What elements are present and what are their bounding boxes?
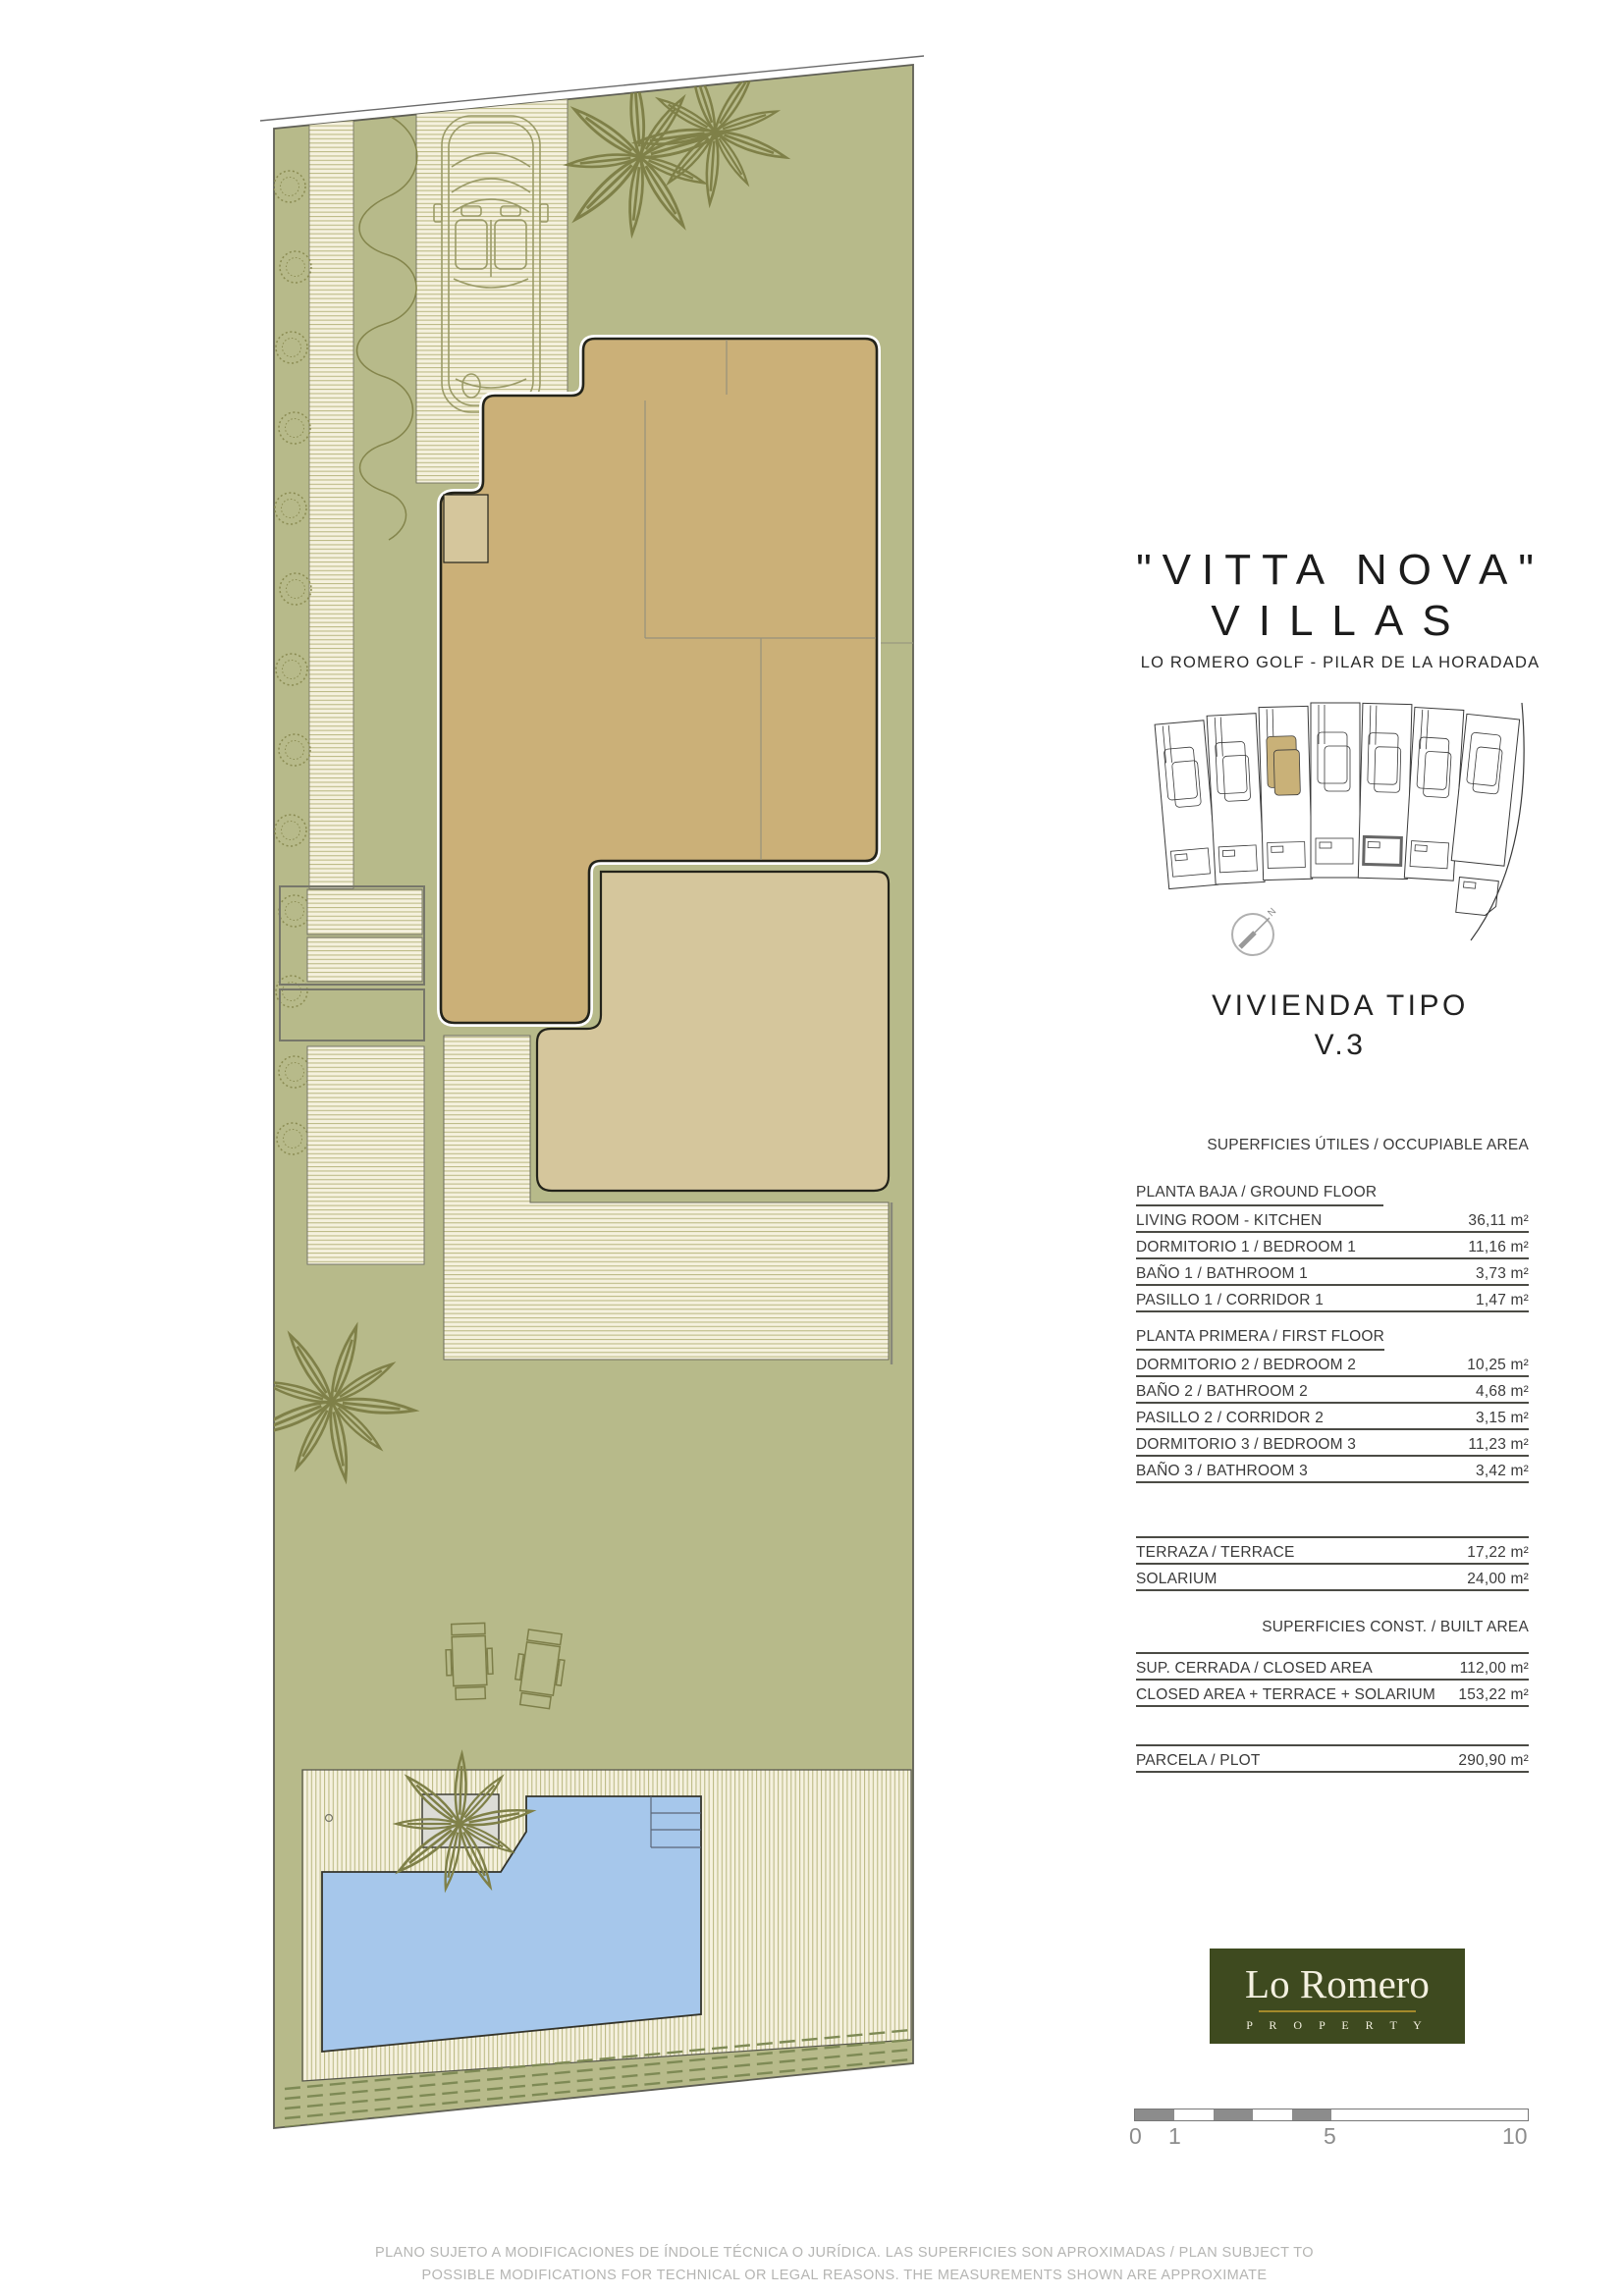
porch <box>444 495 488 562</box>
scale-bar-segments <box>1134 2109 1529 2121</box>
disclaimer: PLANO SUJETO A MODIFICACIONES DE ÍNDOLE … <box>118 2242 1571 2287</box>
scale-label-0: 0 <box>1129 2123 1142 2150</box>
outdoor-section: TERRAZA / TERRACE 17,22 m² SOLARIUM 24,0… <box>1136 1536 1529 1591</box>
project-title: "VITTA NOVA" <box>1109 546 1571 595</box>
table-row: DORMITORIO 1 / BEDROOM 1 11,16 m² <box>1136 1233 1529 1259</box>
scale-label-1: 1 <box>1168 2123 1181 2150</box>
key-plan: N <box>1147 687 1540 972</box>
logo-tagline: P R O P E R T Y <box>1210 2018 1465 2033</box>
first-floor-section: PLANTA PRIMERA / FIRST FLOOR DORMITORIO … <box>1136 1328 1529 1483</box>
walkway-strip <box>309 49 353 888</box>
disclaimer-line-1: PLANO SUJETO A MODIFICACIONES DE ÍNDOLE … <box>118 2242 1571 2265</box>
ground-floor-section: PLANTA BAJA / GROUND FLOOR LIVING ROOM -… <box>1136 1184 1529 1312</box>
key-plan-highlighted-plot <box>1259 706 1313 880</box>
site-plan <box>0 0 982 2296</box>
disclaimer-line-2: POSSIBLE MODIFICATIONS FOR TECHNICAL OR … <box>118 2265 1571 2287</box>
dwelling-type-code: V.3 <box>1109 1029 1571 1062</box>
north-compass-icon: N <box>1232 906 1278 955</box>
table-row: LIVING ROOM - KITCHEN 36,11 m² <box>1136 1206 1529 1233</box>
ground-floor-title: PLANTA BAJA / GROUND FLOOR <box>1136 1184 1383 1206</box>
plot-section: PARCELA / PLOT 290,90 m² <box>1136 1744 1529 1773</box>
table-row: DORMITORIO 3 / BEDROOM 3 11,23 m² <box>1136 1430 1529 1457</box>
scale-label-10: 10 <box>1502 2123 1528 2150</box>
table-row: TERRAZA / TERRACE 17,22 m² <box>1136 1536 1529 1565</box>
table-row: BAÑO 1 / BATHROOM 1 3,73 m² <box>1136 1259 1529 1286</box>
table-row: BAÑO 3 / BATHROOM 3 3,42 m² <box>1136 1457 1529 1483</box>
logo-name: Lo Romero <box>1210 1960 1465 2007</box>
table-row: SOLARIUM 24,00 m² <box>1136 1565 1529 1591</box>
scale-bar: 0 1 5 10 <box>1134 2109 1529 2149</box>
table-row: PARCELA / PLOT 290,90 m² <box>1136 1744 1529 1773</box>
dwelling-type-block: VIVIENDA TIPO V.3 <box>1109 989 1571 1062</box>
built-section: SUP. CERRADA / CLOSED AREA 112,00 m² CLO… <box>1136 1652 1529 1707</box>
table-row: DORMITORIO 2 / BEDROOM 2 10,25 m² <box>1136 1351 1529 1377</box>
lo-romero-logo: Lo Romero P R O P E R T Y <box>1210 1949 1465 2044</box>
table-row: SUP. CERRADA / CLOSED AREA 112,00 m² <box>1136 1652 1529 1681</box>
area-tables: SUPERFICIES ÚTILES / OCCUPIABLE AREA PLA… <box>1136 1137 1529 1773</box>
project-location: LO ROMERO GOLF - PILAR DE LA HORADADA <box>1109 654 1571 672</box>
table-row: CLOSED AREA + TERRACE + SOLARIUM 153,22 … <box>1136 1681 1529 1707</box>
scale-label-5: 5 <box>1324 2123 1336 2150</box>
logo-rule <box>1259 2010 1416 2012</box>
dwelling-type-label: VIVIENDA TIPO <box>1109 989 1571 1023</box>
project-title-block: "VITTA NOVA" VILLAS LO ROMERO GOLF - PIL… <box>1109 546 1571 672</box>
table-row: PASILLO 1 / CORRIDOR 1 1,47 m² <box>1136 1286 1529 1312</box>
built-area-header: SUPERFICIES CONST. / BUILT AREA <box>1136 1619 1529 1640</box>
table-row: PASILLO 2 / CORRIDOR 2 3,15 m² <box>1136 1404 1529 1430</box>
occupiable-area-header: SUPERFICIES ÚTILES / OCCUPIABLE AREA <box>1136 1137 1529 1158</box>
table-row: BAÑO 2 / BATHROOM 2 4,68 m² <box>1136 1377 1529 1404</box>
first-floor-title: PLANTA PRIMERA / FIRST FLOOR <box>1136 1328 1384 1351</box>
project-subtitle-villas: VILLAS <box>1109 597 1571 646</box>
north-label: N <box>1266 906 1278 919</box>
